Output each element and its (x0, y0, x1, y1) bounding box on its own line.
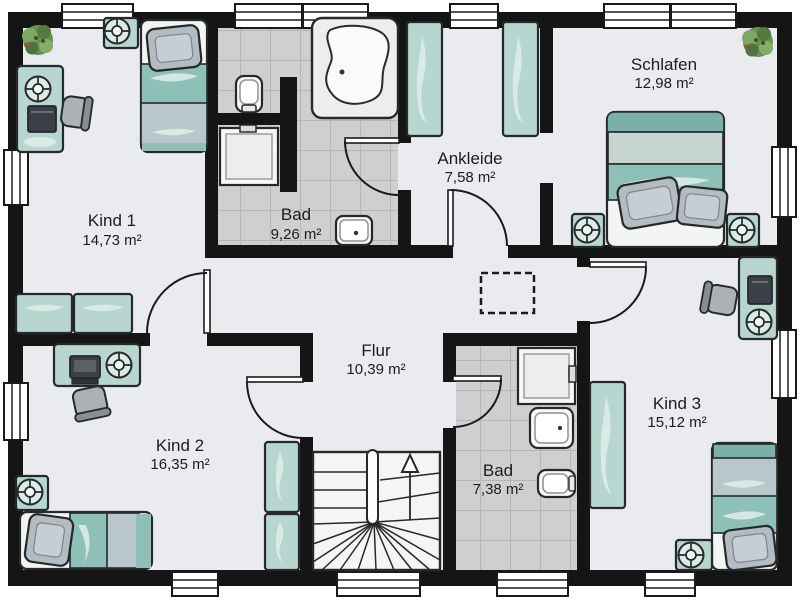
window (645, 572, 695, 596)
wall-flur-kind3-stub (577, 245, 590, 267)
room-label-schlafen: Schlafen (631, 55, 697, 74)
wall-flur-bad2-lower (443, 428, 456, 574)
window (497, 572, 568, 596)
room-area-ankleide: 7,58 m² (445, 169, 496, 186)
wall-ankleide-schlafen-upper (540, 26, 553, 133)
window (772, 330, 796, 398)
toilet (236, 76, 262, 112)
pillow (616, 176, 683, 230)
room-label-kind1: Kind 1 (88, 211, 136, 230)
nightstand (104, 18, 138, 48)
nightstand (727, 214, 759, 247)
wall-kind1-kind2-right (207, 333, 313, 346)
stair-divider (367, 450, 378, 524)
single-bed (712, 443, 777, 571)
room-label-bad-bottom: Bad (483, 461, 513, 480)
window (671, 4, 736, 28)
floor-plan-page: Kind 1 14,73 m² Bad 9,26 m² Ankleide 7,5… (0, 0, 800, 600)
window (4, 383, 28, 440)
room-area-schlafen: 12,98 m² (634, 75, 693, 92)
lamp-icon (730, 218, 755, 243)
lamp-icon (679, 543, 704, 568)
window (235, 4, 302, 28)
office-chair (60, 93, 93, 131)
wall-kind2-stairs-upper (300, 333, 313, 382)
staircase (313, 450, 440, 570)
lamp-icon (575, 218, 600, 243)
window (450, 4, 498, 28)
wall-outer-right (777, 12, 792, 586)
wardrobe (265, 514, 299, 570)
room-label-kind2: Kind 2 (156, 436, 204, 455)
desk (54, 344, 140, 386)
window (772, 147, 796, 217)
room-label-bad-top: Bad (281, 205, 311, 224)
window (337, 572, 420, 596)
wall-bad1-partition-h (212, 113, 280, 125)
wall-bad1-partition-v (280, 77, 297, 192)
single-bed (20, 512, 152, 569)
pillow (723, 525, 778, 571)
wardrobe (590, 382, 625, 508)
window (172, 572, 218, 596)
wardrobe (407, 22, 442, 136)
wall-kind2-stairs-lower (300, 437, 313, 574)
desk-lamp-icon (26, 77, 51, 102)
laptop-icon (748, 276, 772, 304)
desk (17, 66, 63, 152)
plant-icon (22, 25, 53, 55)
shower (518, 348, 576, 404)
wall-bad2-kind3 (577, 346, 590, 574)
lamp-icon (18, 480, 43, 505)
sideboard (74, 294, 132, 333)
pillow (146, 24, 202, 71)
plant-icon (742, 27, 773, 57)
nightstand (676, 540, 712, 570)
room-area-kind2: 16,35 m² (150, 456, 209, 473)
sideboard (16, 294, 72, 333)
wall-flur-top-left (205, 245, 453, 258)
wall-flur-bad2-upper (443, 333, 456, 382)
wardrobe (265, 442, 299, 512)
window (4, 150, 28, 205)
room-area-kind3: 15,12 m² (647, 414, 706, 431)
shower (220, 125, 278, 185)
wall-flur-bottom-right (443, 333, 590, 346)
toilet (538, 470, 575, 497)
pillow (24, 513, 74, 567)
corner-bathtub (312, 18, 398, 118)
window (604, 4, 670, 28)
desk (739, 257, 777, 339)
room-area-kind1: 14,73 m² (82, 232, 141, 249)
room-label-flur: Flur (361, 341, 391, 360)
room-label-ankleide: Ankleide (437, 149, 502, 168)
single-bed (141, 20, 207, 152)
double-bed (607, 112, 728, 247)
washbasin (530, 408, 573, 448)
desk-lamp-icon (107, 353, 132, 378)
wardrobe (503, 22, 538, 136)
room-area-flur: 10,39 m² (346, 361, 405, 378)
nightstand (572, 214, 604, 247)
pillow (676, 186, 728, 229)
lamp-icon (105, 19, 130, 44)
washbasin (336, 216, 372, 245)
room-label-kind3: Kind 3 (653, 394, 701, 413)
room-area-bad-top: 9,26 m² (271, 226, 322, 243)
nightstand (16, 476, 48, 510)
floor-plan: Kind 1 14,73 m² Bad 9,26 m² Ankleide 7,5… (0, 0, 800, 600)
desk-lamp-icon (747, 310, 772, 335)
laptop-icon (28, 106, 56, 132)
room-area-bad-bottom: 7,38 m² (473, 481, 524, 498)
